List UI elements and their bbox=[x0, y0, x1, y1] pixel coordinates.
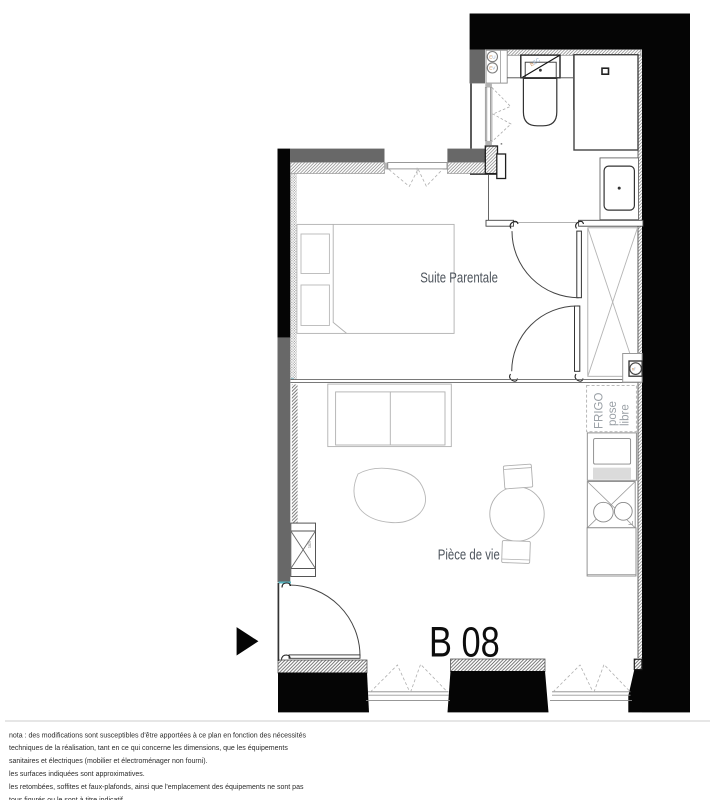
svg-text:libre: libre bbox=[620, 404, 632, 426]
svg-text:les retombées, soffites et fau: les retombées, soffites et faux-plafonds… bbox=[9, 782, 304, 791]
svg-text:tabl: tabl bbox=[307, 541, 312, 548]
svg-text:techniques de la réalisation,: techniques de la réalisation, tant en ce… bbox=[9, 743, 288, 752]
svg-text:Suite Parentale: Suite Parentale bbox=[420, 269, 498, 286]
svg-text:nota : des modifications sont: nota : des modifications sont susceptibl… bbox=[9, 730, 306, 739]
svg-text:les surfaces indiquées sont ap: les surfaces indiquées sont approximativ… bbox=[9, 769, 145, 778]
svg-text:B 08: B 08 bbox=[429, 619, 500, 666]
svg-text:FRIGO: FRIGO bbox=[594, 393, 606, 429]
svg-text:sanitaires et électriques (mob: sanitaires et électriques (mobilier et é… bbox=[9, 756, 208, 765]
svg-text:Pièce de vie: Pièce de vie bbox=[438, 546, 500, 563]
svg-text:EU: EU bbox=[489, 54, 495, 59]
svg-text:tous figurés ou le sont à titr: tous figurés ou le sont à titre indicati… bbox=[9, 795, 125, 800]
svg-text:EV: EV bbox=[489, 66, 496, 71]
svg-text:pose: pose bbox=[607, 401, 619, 426]
